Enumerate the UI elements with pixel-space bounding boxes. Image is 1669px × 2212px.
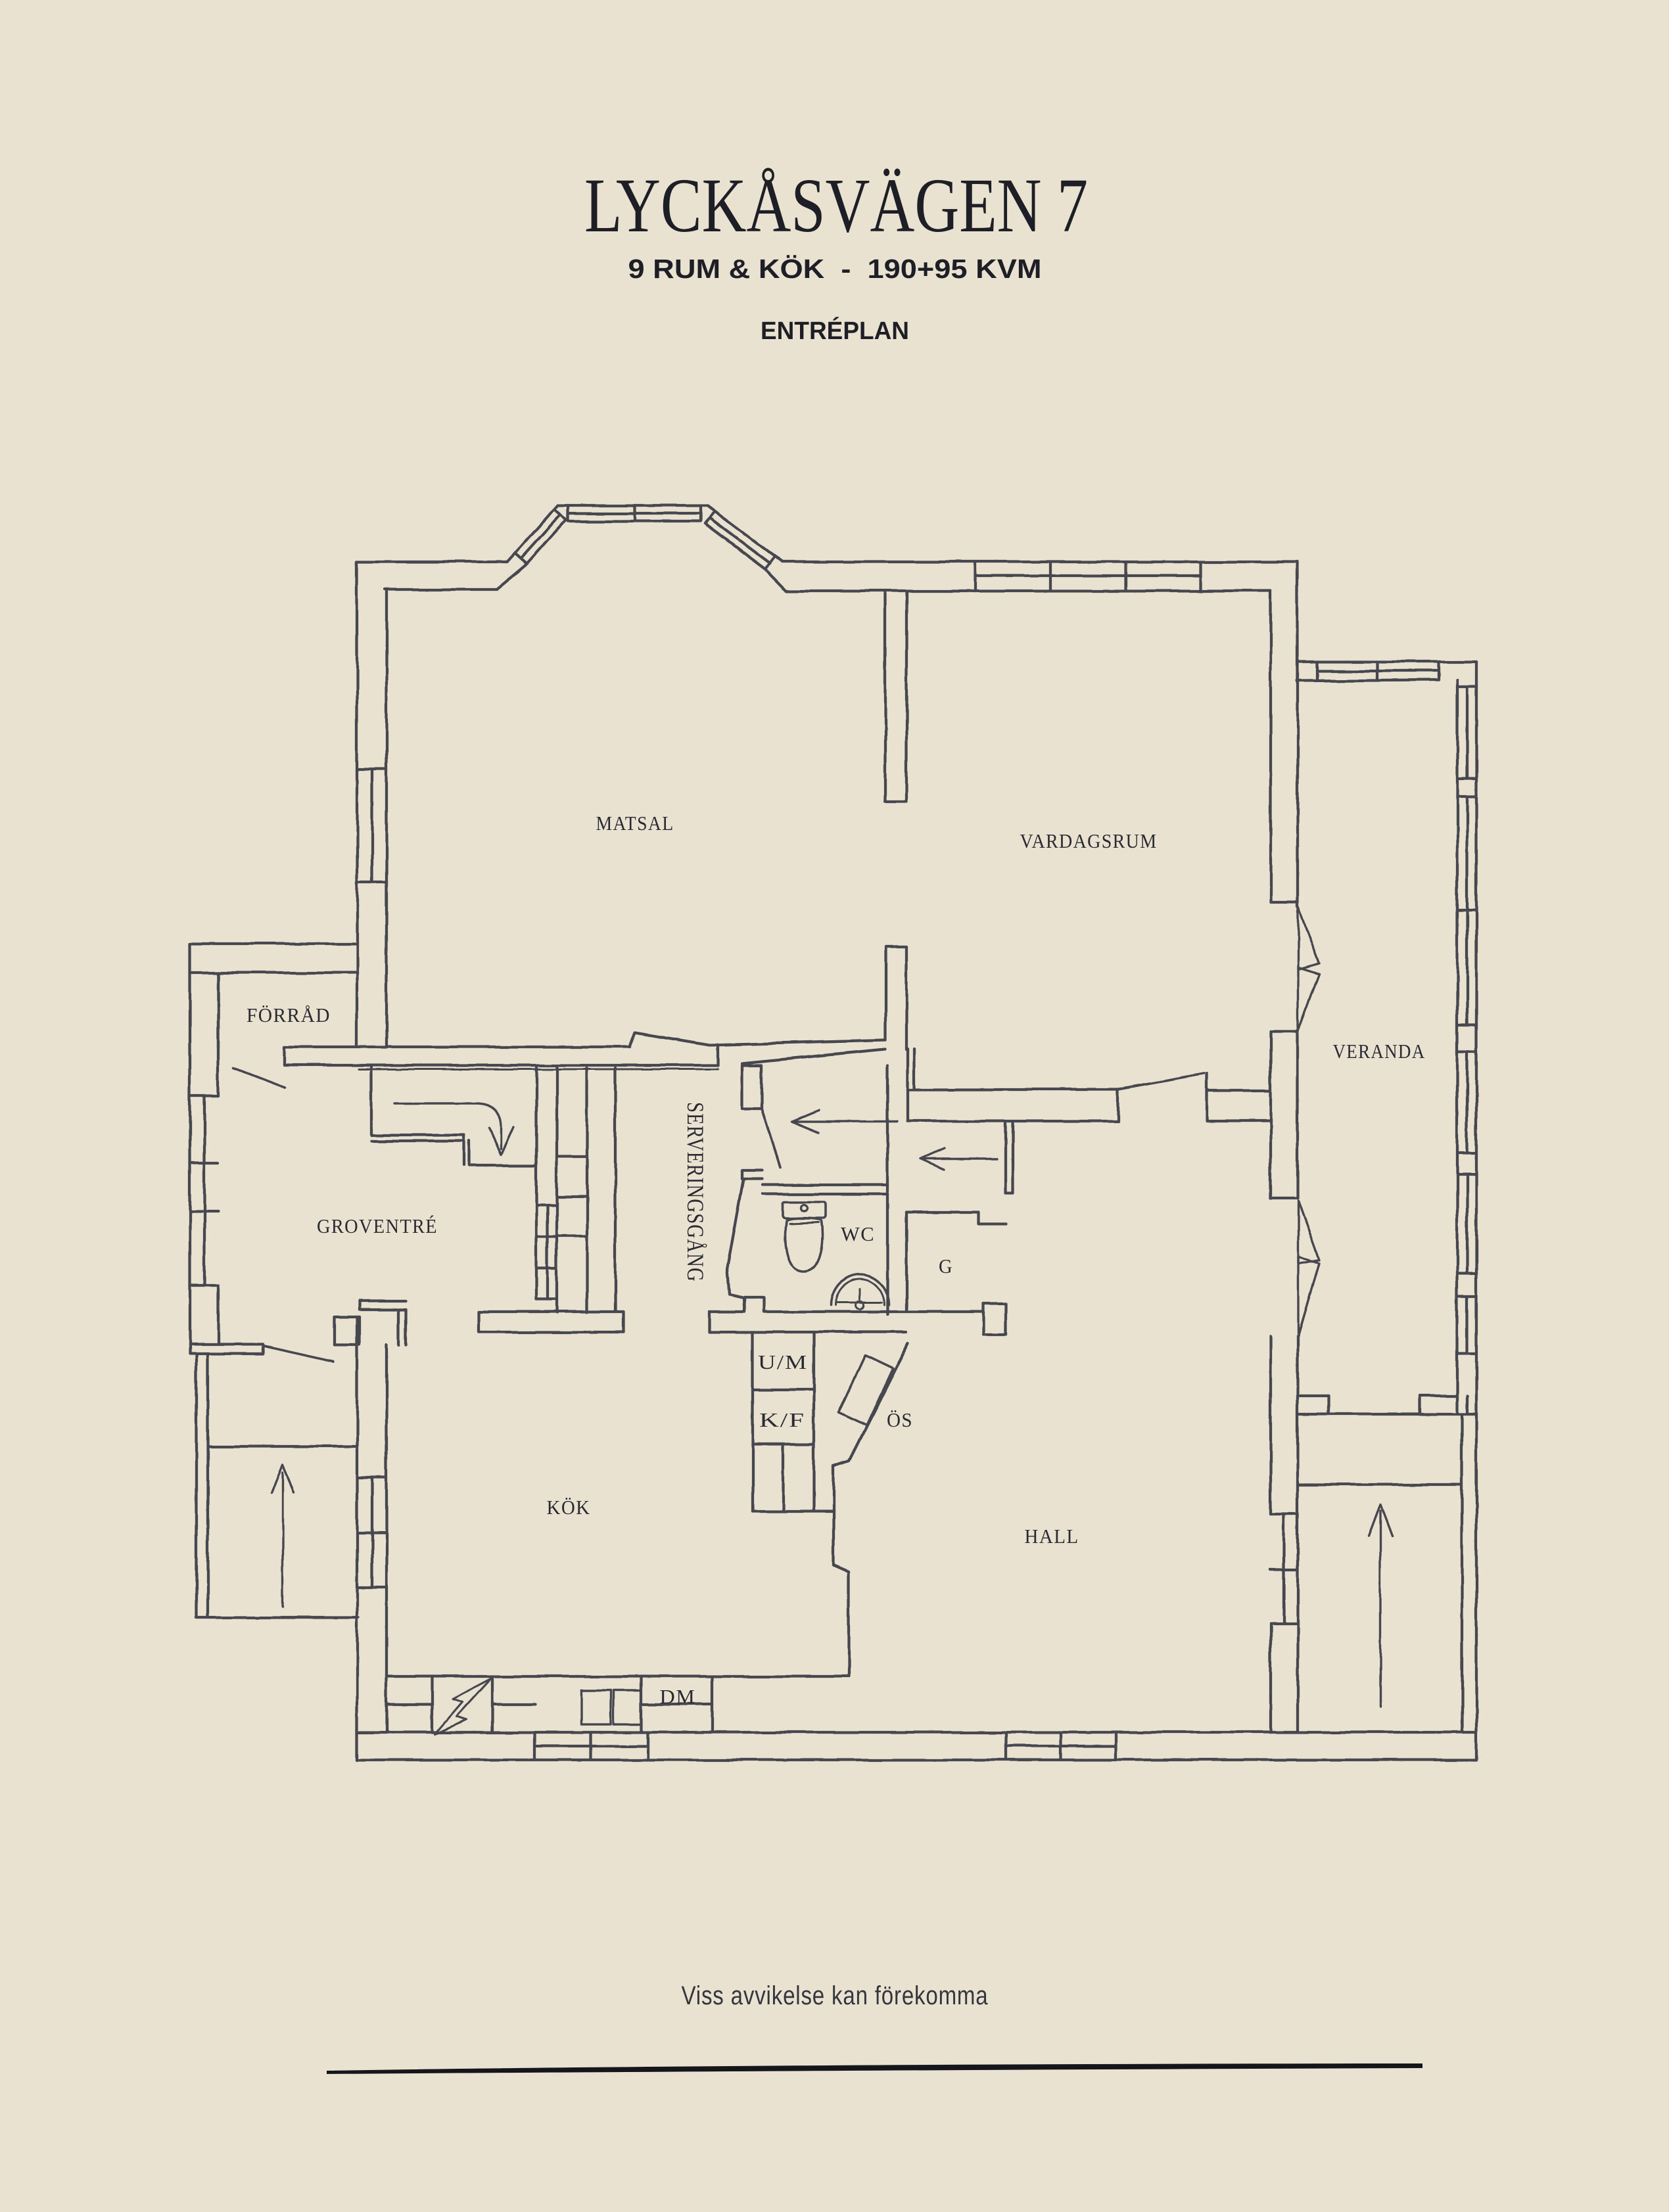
- svg-text:GROVENTRÉ: GROVENTRÉ: [317, 1214, 438, 1237]
- svg-text:Viss avvikelse kan förekomma: Viss avvikelse kan förekomma: [682, 1981, 989, 2010]
- svg-text:K/F: K/F: [759, 1408, 805, 1431]
- svg-text:VARDAGSRUM: VARDAGSRUM: [1020, 829, 1158, 852]
- svg-text:DM: DM: [660, 1685, 696, 1708]
- svg-text:HALL: HALL: [1025, 1525, 1079, 1548]
- svg-text:VERANDA: VERANDA: [1333, 1040, 1426, 1063]
- svg-text:FÖRRÅD: FÖRRÅD: [247, 1003, 331, 1026]
- svg-text:WC: WC: [841, 1222, 875, 1245]
- svg-text:MATSAL: MATSAL: [596, 812, 674, 835]
- svg-text:G: G: [939, 1255, 953, 1278]
- svg-text:SERVERINGSGÅNG: SERVERINGSGÅNG: [682, 1102, 709, 1282]
- svg-text:U/M: U/M: [758, 1350, 808, 1373]
- svg-text:ÖS: ÖS: [887, 1408, 913, 1431]
- svg-text:KÖK: KÖK: [547, 1496, 591, 1519]
